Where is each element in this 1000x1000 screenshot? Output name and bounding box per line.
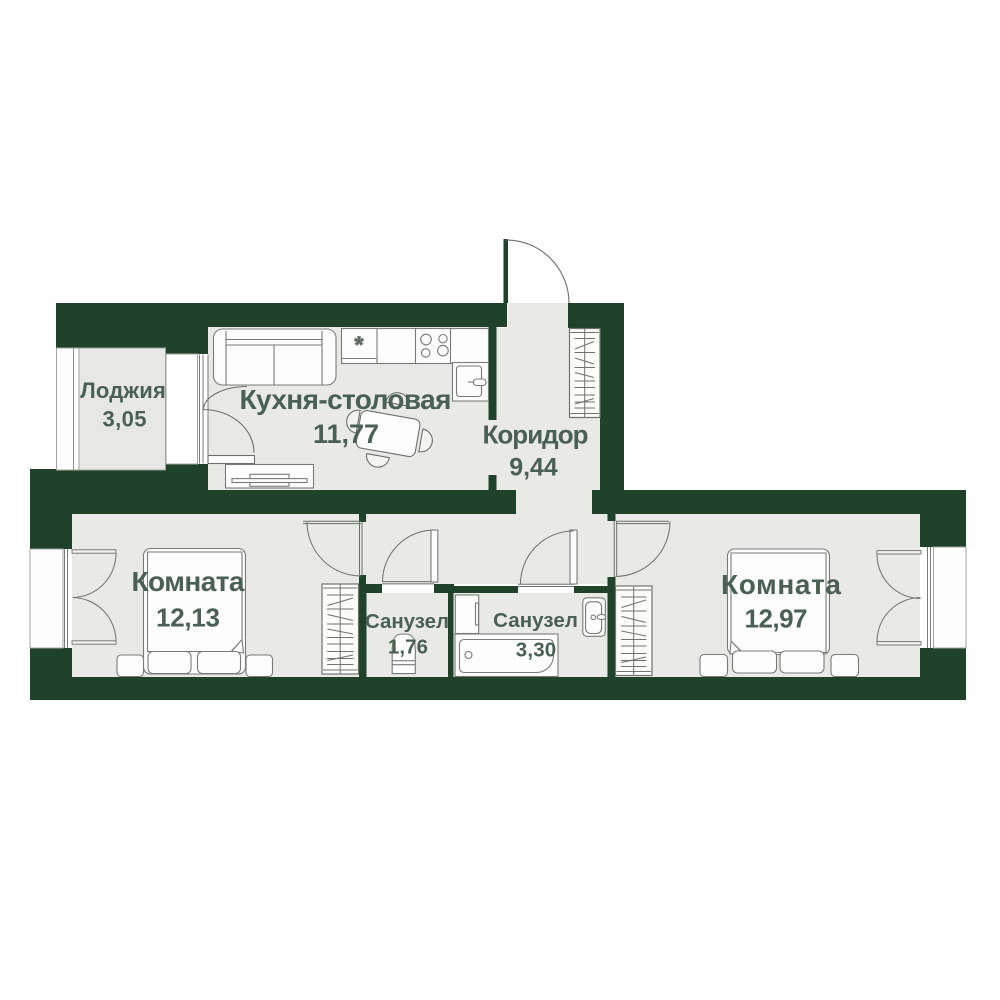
svg-text:Санузел: Санузел [493,609,578,632]
svg-text:3,30: 3,30 [516,639,556,662]
svg-text:12,13: 12,13 [156,603,220,633]
svg-text:Комната: Комната [132,566,245,597]
svg-text:12,97: 12,97 [745,604,808,634]
svg-text:3,05: 3,05 [103,407,147,432]
svg-text:1,76: 1,76 [388,636,428,659]
svg-text:*: * [355,332,364,358]
svg-text:Комната: Комната [721,569,841,600]
svg-text:11,77: 11,77 [313,419,379,449]
svg-text:Санузел: Санузел [365,610,449,633]
svg-text:Лоджия: Лоджия [80,378,166,403]
svg-text:9,44: 9,44 [509,454,558,482]
svg-text:Кухня-столовая: Кухня-столовая [240,384,452,415]
svg-text:Коридор: Коридор [483,420,589,450]
